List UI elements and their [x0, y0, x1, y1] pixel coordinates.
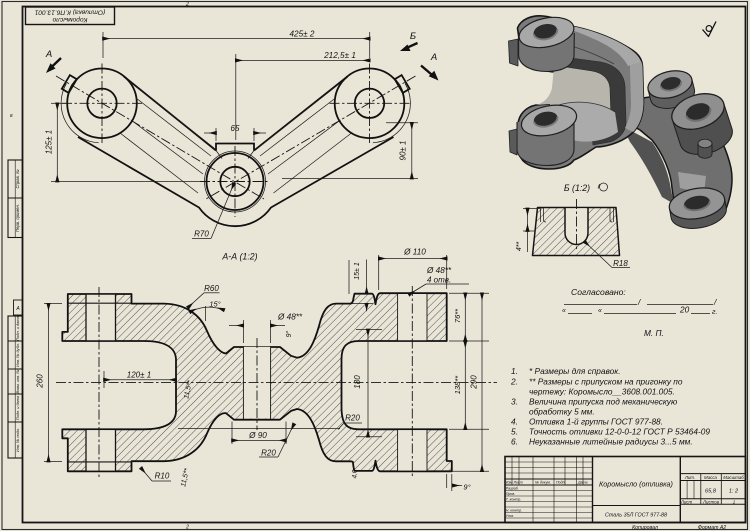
svg-text:65: 65: [231, 124, 240, 133]
svg-text:4.: 4.: [511, 417, 518, 427]
svg-text:«: «: [598, 308, 602, 315]
svg-text:№ докум.: № докум.: [535, 480, 551, 484]
svg-text:М. П.: М. П.: [644, 328, 664, 338]
svg-text:65,8: 65,8: [705, 489, 717, 495]
svg-text:1: 2: 1: 2: [729, 489, 739, 495]
svg-text:180: 180: [353, 375, 362, 389]
svg-text:260: 260: [36, 374, 45, 389]
svg-text:5.: 5.: [511, 426, 518, 436]
svg-text:Ø 110: Ø 110: [403, 248, 426, 257]
svg-text:Ø 48**: Ø 48**: [277, 313, 303, 322]
svg-text:Точность отливки 12-0-0-12 ГОС: Точность отливки 12-0-0-12 ГОСТ Р 53464-…: [529, 426, 710, 436]
svg-text:Справ. №: Справ. №: [15, 169, 20, 188]
svg-text:R60: R60: [204, 284, 219, 293]
svg-text:Утв.: Утв.: [506, 514, 514, 518]
svg-text:290: 290: [470, 375, 479, 390]
svg-text:20: 20: [679, 305, 690, 315]
svg-text:А-А (1:2): А-А (1:2): [221, 252, 257, 262]
svg-text:Неуказанные литейные радиусы 3: Неуказанные литейные радиусы 3...5 мм.: [529, 436, 693, 446]
svg-text:(Отливка) К.П6.13.001: (Отливка) К.П6.13.001: [34, 8, 105, 15]
svg-text:Ø 90: Ø 90: [248, 431, 267, 440]
svg-text:Сталь 35Л ГОСТ 977-88: Сталь 35Л ГОСТ 977-88: [605, 513, 667, 519]
svg-text:Коромысло (отливка): Коромысло (отливка): [599, 480, 673, 489]
svg-text:Изм Лист: Изм Лист: [506, 480, 523, 484]
svg-text:Инв. № дубл.: Инв. № дубл.: [15, 343, 20, 367]
svg-text:Отливка 1-й группы ГОСТ 977-88: Отливка 1-й группы ГОСТ 977-88.: [529, 417, 663, 427]
svg-text:Т. контр.: Т. контр.: [506, 498, 522, 502]
svg-text:Копировал: Копировал: [632, 525, 658, 531]
svg-text:76**: 76**: [453, 308, 462, 323]
svg-text:4,0: 4,0: [352, 469, 359, 478]
svg-text:«: «: [562, 308, 566, 315]
svg-text:R10: R10: [155, 472, 170, 481]
svg-text:Ø 48**: Ø 48**: [426, 266, 452, 275]
svg-text:2: 2: [185, 525, 189, 531]
svg-text:90± 1: 90± 1: [399, 141, 408, 161]
svg-text:Лит.: Лит.: [684, 475, 695, 480]
svg-text:15± 1: 15± 1: [354, 262, 361, 280]
svg-text:R20: R20: [261, 449, 276, 458]
svg-text:Листов: Листов: [702, 499, 720, 504]
svg-text:4**: 4**: [516, 242, 523, 252]
svg-text:обработку 5 мм.: обработку 5 мм.: [529, 406, 595, 416]
svg-text:Пров.: Пров.: [506, 492, 515, 496]
svg-text:9°: 9°: [285, 330, 293, 337]
svg-text:г.: г.: [712, 309, 717, 316]
svg-text:* Размеры для справок.: * Размеры для справок.: [529, 366, 621, 376]
svg-text:9°: 9°: [463, 483, 470, 492]
svg-text:Перв. примен.: Перв. примен.: [15, 204, 20, 232]
svg-text:1.: 1.: [511, 366, 518, 376]
svg-text:** Размеры с припуском на приг: ** Размеры с припуском на пригонку по: [529, 376, 683, 386]
svg-text:Б (1:2): Б (1:2): [564, 183, 590, 193]
svg-text:4 отв.: 4 отв.: [427, 275, 451, 284]
svg-text:Н. контр.: Н. контр.: [506, 509, 522, 513]
svg-text:Коромысло: Коромысло: [52, 16, 87, 23]
svg-text:Масштаб: Масштаб: [723, 475, 744, 480]
svg-text:6.: 6.: [511, 436, 518, 446]
svg-text:Величина припуска под механиче: Величина припуска под механическую: [529, 397, 677, 407]
svg-text:3.: 3.: [511, 397, 518, 407]
svg-text:Формат А2: Формат А2: [698, 525, 726, 531]
svg-text:Подп. и дата: Подп. и дата: [15, 315, 20, 340]
svg-text:R18: R18: [613, 259, 628, 268]
svg-text:Взам. инв. №: Взам. инв. №: [15, 369, 20, 394]
svg-text:А: А: [430, 52, 437, 63]
svg-text:125± 1: 125± 1: [45, 130, 54, 154]
svg-text:чертежу: Коромысло__3608.001.0: чертежу: Коромысло__3608.001.005.: [529, 386, 675, 396]
svg-text:Масса: Масса: [704, 475, 718, 480]
svg-text:425± 2: 425± 2: [290, 30, 315, 39]
svg-text:в: в: [10, 113, 13, 119]
svg-text:212,5± 1: 212,5± 1: [323, 51, 356, 60]
svg-text:120± 1: 120± 1: [127, 371, 151, 380]
svg-text:Подп. и дата: Подп. и дата: [15, 395, 20, 420]
svg-text:А: А: [45, 49, 52, 60]
svg-text:Дата: Дата: [577, 480, 587, 484]
svg-text:2.: 2.: [510, 376, 518, 386]
svg-text:Подп.: Подп.: [556, 480, 566, 484]
svg-text:Б: Б: [410, 31, 416, 42]
svg-text:Инв. № подл.: Инв. № подл.: [15, 428, 20, 452]
svg-text:138**: 138**: [453, 375, 462, 394]
svg-text:Согласовано:: Согласовано:: [571, 287, 626, 297]
svg-text:Лист: Лист: [680, 499, 693, 504]
svg-text:2: 2: [185, 2, 189, 8]
svg-text:R70: R70: [194, 230, 209, 239]
svg-text:Разраб.: Разраб.: [506, 487, 519, 491]
svg-text:R20: R20: [345, 414, 360, 423]
svg-text:А: А: [15, 306, 20, 312]
